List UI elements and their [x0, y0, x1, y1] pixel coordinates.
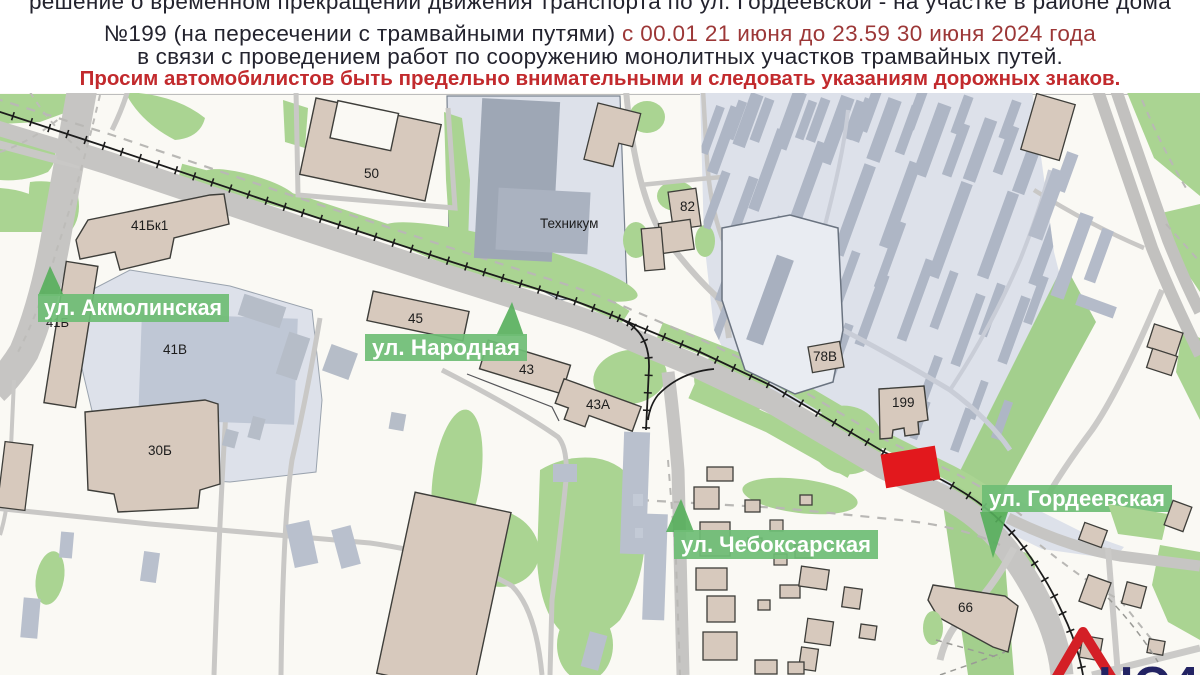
svg-text:199: 199 — [892, 395, 915, 410]
svg-text:ул. Народная: ул. Народная — [372, 335, 520, 360]
svg-text:41Бк1: 41Бк1 — [131, 218, 168, 233]
svg-text:50: 50 — [364, 166, 379, 181]
svg-text:ул. Гордеевская: ул. Гордеевская — [989, 486, 1165, 511]
svg-text:НО44: НО44 — [1098, 658, 1200, 675]
svg-text:43А: 43А — [586, 397, 610, 412]
svg-text:Техникум: Техникум — [540, 216, 598, 231]
svg-text:ул. Акмолинская: ул. Акмолинская — [44, 295, 222, 320]
svg-text:30Б: 30Б — [148, 443, 172, 458]
svg-text:ул. Чебоксарская: ул. Чебоксарская — [681, 532, 871, 557]
svg-text:66: 66 — [958, 600, 973, 615]
svg-text:45: 45 — [408, 311, 423, 326]
svg-text:41В: 41В — [163, 342, 187, 357]
svg-text:78В: 78В — [813, 349, 837, 364]
svg-text:82: 82 — [680, 199, 695, 214]
svg-text:43: 43 — [519, 362, 534, 377]
